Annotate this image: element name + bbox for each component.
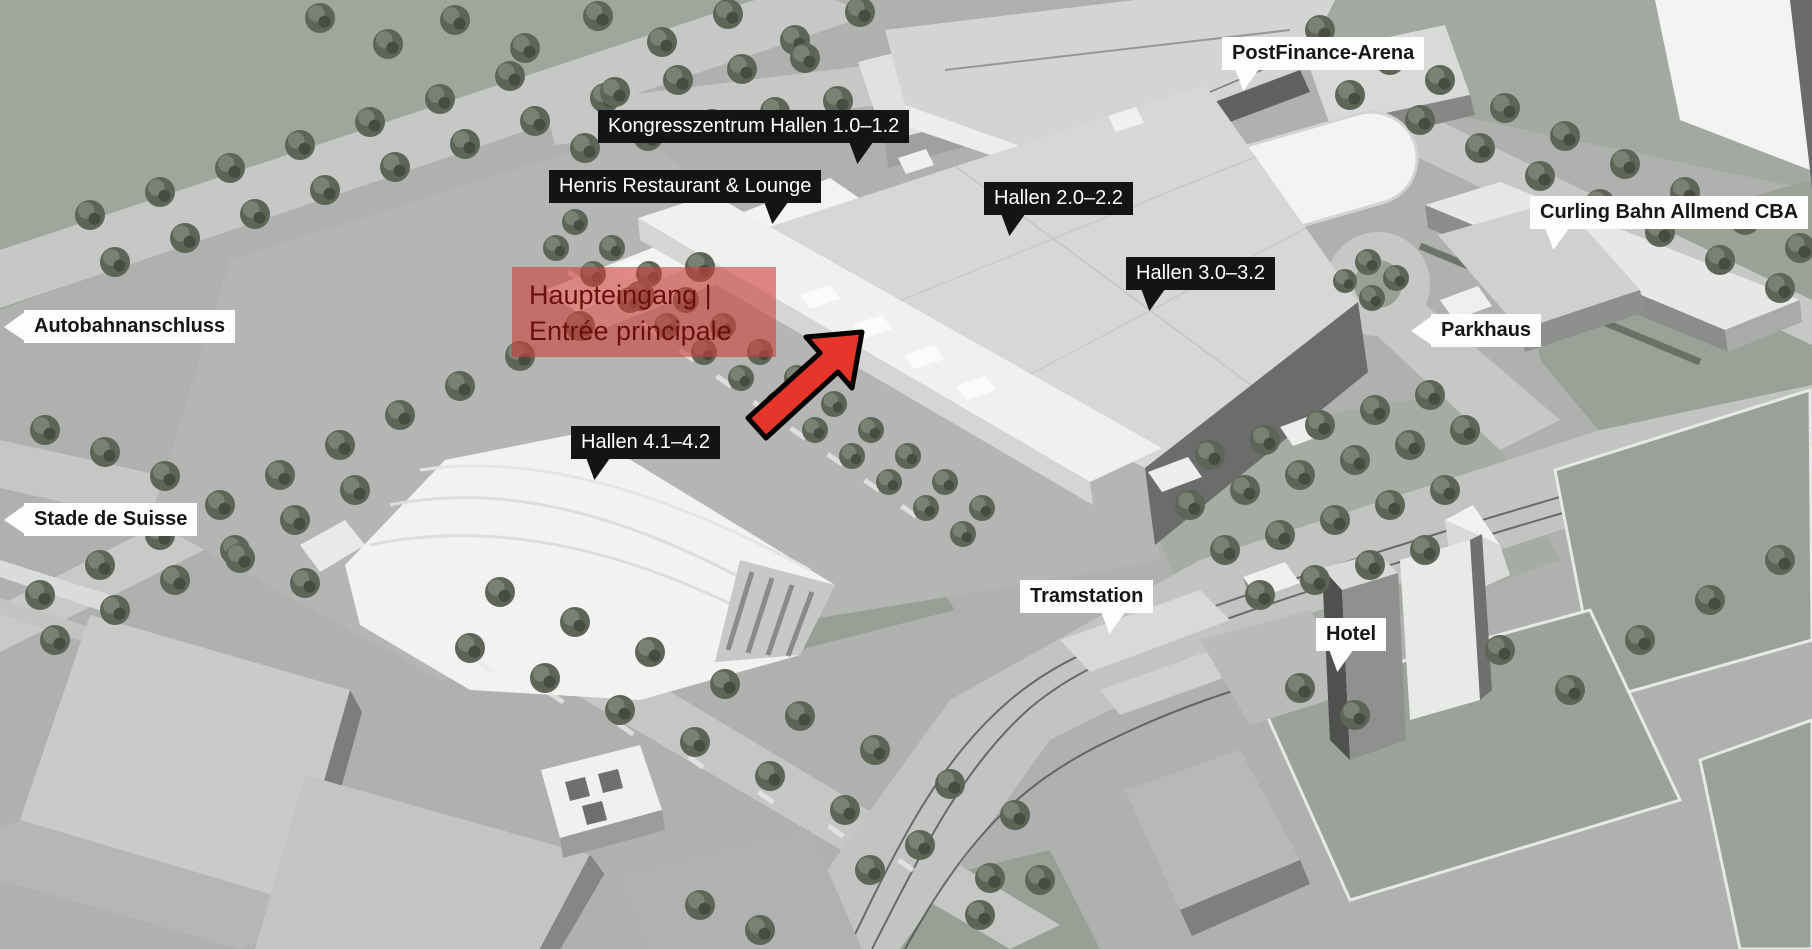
tree-icon [1250, 425, 1280, 455]
tree-icon [905, 830, 935, 860]
tree-icon [1430, 475, 1460, 505]
tree-icon [225, 543, 255, 573]
tree-icon [932, 469, 958, 495]
tree-icon [1765, 545, 1795, 575]
tree-icon [510, 33, 540, 63]
tree-icon [560, 607, 590, 637]
tree-icon [150, 461, 180, 491]
tree-icon [285, 130, 315, 160]
tree-icon [635, 637, 665, 667]
tree-icon [170, 223, 200, 253]
tree-icon [310, 175, 340, 205]
tree-icon [543, 235, 569, 261]
tree-icon [1765, 273, 1795, 303]
tree-icon [495, 61, 525, 91]
tree-icon [605, 695, 635, 725]
tree-icon [710, 669, 740, 699]
tree-icon [1300, 565, 1330, 595]
tree-icon [1695, 585, 1725, 615]
tree-icon [913, 495, 939, 521]
main-entrance-line1: Haupteingang | [529, 277, 776, 313]
label-parkhaus: Parkhaus [1431, 314, 1541, 347]
tree-icon [1340, 445, 1370, 475]
label-henris-restaurant: Henris Restaurant & Lounge [549, 170, 821, 203]
tree-icon [1305, 410, 1335, 440]
label-tramstation: Tramstation [1020, 580, 1153, 613]
tree-icon [85, 550, 115, 580]
tree-icon [340, 475, 370, 505]
label-hallen-4: Hallen 4.1–4.2 [571, 426, 720, 459]
main-entrance-line2: Entrée principale [529, 313, 776, 349]
tree-icon [663, 65, 693, 95]
tree-icon [713, 0, 743, 29]
label-stade-de-suisse: Stade de Suisse [24, 503, 197, 536]
tree-icon [305, 3, 335, 33]
tree-icon [745, 915, 775, 945]
main-entrance-highlight: Haupteingang | Entrée principale [512, 267, 776, 357]
tree-icon [1320, 505, 1350, 535]
tree-icon [755, 761, 785, 791]
tree-icon [860, 735, 890, 765]
tree-icon [830, 795, 860, 825]
tree-icon [1000, 800, 1030, 830]
tree-icon [145, 177, 175, 207]
tree-icon [1485, 635, 1515, 665]
tree-icon [1375, 490, 1405, 520]
tree-icon [1265, 520, 1295, 550]
tree-icon [1335, 80, 1365, 110]
tree-icon [325, 430, 355, 460]
tree-icon [455, 633, 485, 663]
tree-icon [1333, 269, 1357, 293]
tree-icon [647, 27, 677, 57]
tree-icon [895, 443, 921, 469]
label-postfinance-arena: PostFinance-Arena [1222, 37, 1424, 70]
tree-icon [290, 568, 320, 598]
tree-icon [25, 580, 55, 610]
tree-icon [1355, 249, 1381, 275]
tree-icon [1340, 700, 1370, 730]
tree-icon [240, 199, 270, 229]
tree-icon [1195, 440, 1225, 470]
tree-icon [355, 107, 385, 137]
tree-icon [280, 505, 310, 535]
tree-icon [100, 247, 130, 277]
tree-icon [975, 863, 1005, 893]
tree-icon [215, 153, 245, 183]
tree-icon [1625, 625, 1655, 655]
tree-icon [425, 84, 455, 114]
label-hallen-3: Hallen 3.0–3.2 [1126, 257, 1275, 290]
tree-icon [1285, 460, 1315, 490]
tree-icon [1395, 430, 1425, 460]
tree-icon [75, 200, 105, 230]
tree-icon [265, 460, 295, 490]
tree-icon [1415, 380, 1445, 410]
label-hotel: Hotel [1316, 618, 1386, 651]
tree-icon [1555, 675, 1585, 705]
tree-icon [570, 133, 600, 163]
tree-icon [40, 625, 70, 655]
tree-icon [876, 469, 902, 495]
tree-icon [1410, 535, 1440, 565]
tree-icon [1405, 105, 1435, 135]
tree-icon [450, 129, 480, 159]
tree-icon [1230, 475, 1260, 505]
tree-icon [380, 152, 410, 182]
tree-icon [950, 521, 976, 547]
site-plan-map: Haupteingang | Entrée principale Kongres… [0, 0, 1812, 949]
tree-icon [1360, 395, 1390, 425]
tree-icon [599, 235, 625, 261]
label-curling-bahn: Curling Bahn Allmend CBA [1530, 196, 1808, 229]
tree-icon [485, 577, 515, 607]
tree-icon [30, 415, 60, 445]
tree-icon [855, 855, 885, 885]
tree-icon [969, 495, 995, 521]
tree-icon [440, 5, 470, 35]
tree-icon [728, 365, 754, 391]
tree-icon [1550, 121, 1580, 151]
tree-icon [1450, 415, 1480, 445]
tree-icon [790, 43, 820, 73]
tree-icon [1285, 673, 1315, 703]
tree-icon [839, 443, 865, 469]
label-kongresszentrum-hallen: Kongresszentrum Hallen 1.0–1.2 [598, 110, 909, 143]
tree-icon [1525, 161, 1555, 191]
tree-icon [680, 727, 710, 757]
tree-icon [727, 54, 757, 84]
tree-icon [685, 890, 715, 920]
tree-icon [90, 437, 120, 467]
tree-icon [373, 29, 403, 59]
tree-icon [100, 595, 130, 625]
tree-icon [1705, 245, 1735, 275]
tree-icon [935, 769, 965, 799]
tree-icon [785, 701, 815, 731]
tree-icon [1425, 65, 1455, 95]
tree-icon [445, 371, 475, 401]
tree-icon [520, 106, 550, 136]
tree-icon [1465, 133, 1495, 163]
label-hallen-2: Hallen 2.0–2.2 [984, 182, 1133, 215]
tree-icon [385, 400, 415, 430]
label-autobahnanschluss: Autobahnanschluss [24, 310, 235, 343]
tree-icon [802, 417, 828, 443]
tree-icon [205, 490, 235, 520]
tree-icon [160, 565, 190, 595]
tree-icon [562, 209, 588, 235]
tree-icon [583, 1, 613, 31]
tree-icon [1355, 550, 1385, 580]
tree-icon [1490, 93, 1520, 123]
tree-icon [600, 77, 630, 107]
tree-icon [1025, 865, 1055, 895]
tree-icon [1610, 149, 1640, 179]
tree-icon [965, 900, 995, 930]
tree-icon [1359, 285, 1385, 311]
tree-icon [858, 417, 884, 443]
tree-icon [1383, 265, 1409, 291]
tree-icon [1210, 535, 1240, 565]
tree-icon [530, 663, 560, 693]
tree-icon [1175, 490, 1205, 520]
tree-icon [821, 391, 847, 417]
tree-icon [1245, 580, 1275, 610]
